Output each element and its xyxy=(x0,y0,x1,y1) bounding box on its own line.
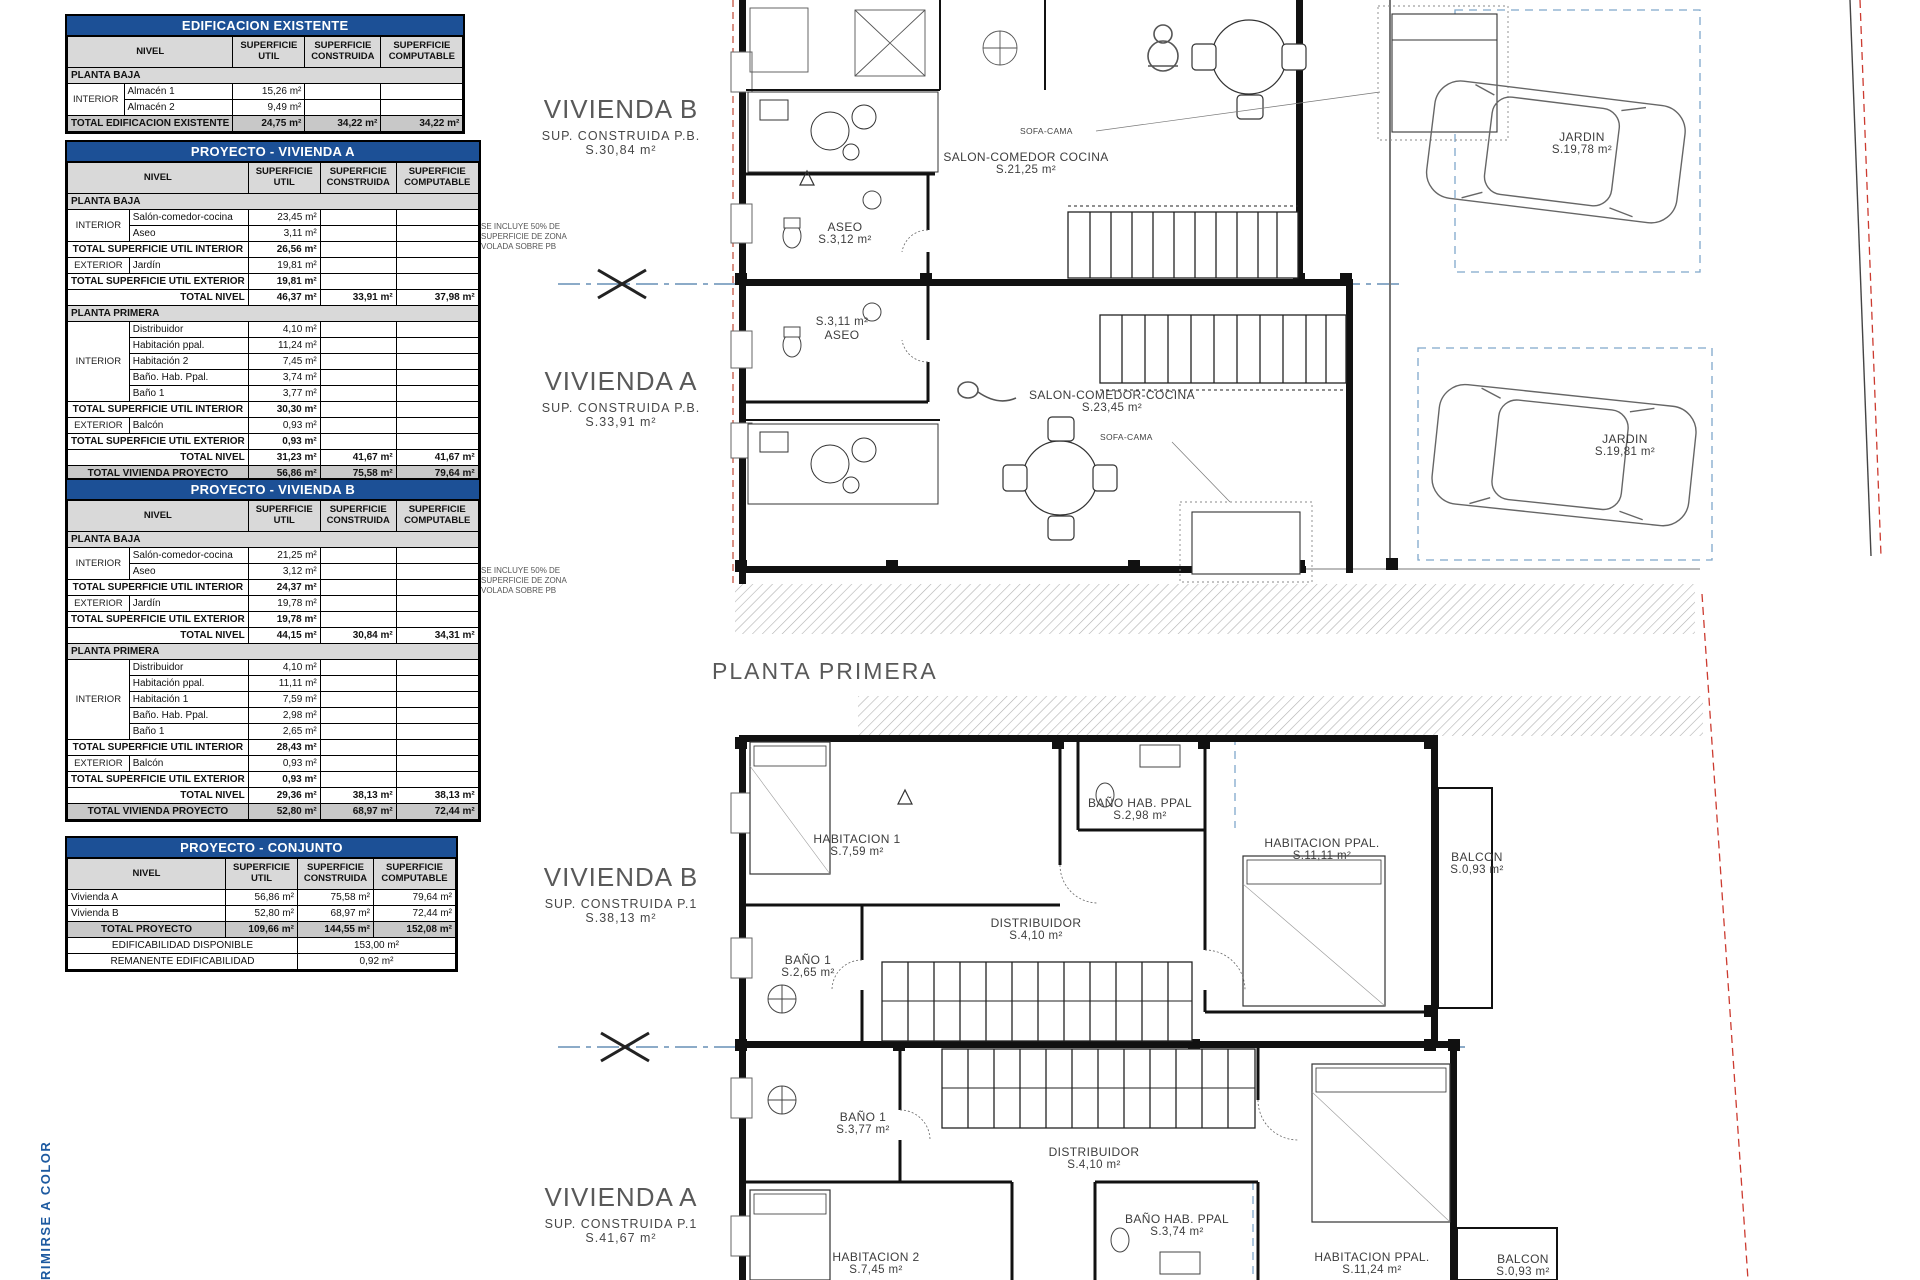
cell: 41,67 m² xyxy=(396,450,478,466)
cell: 9,49 m² xyxy=(233,100,305,116)
col-header-nivel: NIVEL xyxy=(68,163,249,194)
cell xyxy=(320,596,396,612)
room-name: ASEO xyxy=(816,328,869,342)
col-header-util: SUPERFICIE UTIL xyxy=(226,859,298,890)
col-header-util: SUPERFICIE UTIL xyxy=(248,501,320,532)
col-header-nivel: NIVEL xyxy=(68,501,249,532)
cell: Baño. Hab. Ppal. xyxy=(129,370,248,386)
group-cell: INTERIOR xyxy=(68,322,130,402)
cell: 34,31 m² xyxy=(396,628,478,644)
total-nivel-label: TOTAL NIVEL xyxy=(68,450,249,466)
car-icon-a xyxy=(1429,382,1698,528)
cell: 24,37 m² xyxy=(248,580,320,596)
pb-top-fixtures xyxy=(750,8,1017,76)
cell: 0,93 m² xyxy=(248,756,320,772)
room-area: S.11,24 m² xyxy=(1314,1264,1429,1276)
p1-up-arrow-icon xyxy=(898,790,912,804)
room-area: S.19,81 m² xyxy=(1595,446,1655,458)
room-name: HABITACION 1 xyxy=(813,832,900,846)
room-label-habitacion2-a: HABITACION 2 S.7,45 m² xyxy=(832,1250,919,1276)
cell xyxy=(320,724,396,740)
cell: 79,64 m² xyxy=(374,890,456,906)
cell xyxy=(320,370,396,386)
cell: 38,13 m² xyxy=(320,788,396,804)
table-proyecto-vivienda-b: PROYECTO - VIVIENDA B NIVEL SUPERFICIE U… xyxy=(65,478,481,822)
cell xyxy=(396,548,478,564)
cell: 19,78 m² xyxy=(248,596,320,612)
vivienda-area: S.33,91 m² xyxy=(542,415,700,429)
remanente-value: 0,92 m² xyxy=(298,954,456,970)
room-area: S.7,59 m² xyxy=(813,846,900,858)
subtotal-label: TOTAL SUPERFICIE UTIL INTERIOR xyxy=(68,740,249,756)
cell: Balcón xyxy=(129,756,248,772)
room-name: HABITACION 2 xyxy=(832,1250,919,1264)
room-area: S.21,25 m² xyxy=(943,164,1108,176)
group-cell: INTERIOR xyxy=(68,660,130,740)
label-vivienda-a-p1: VIVIENDA A SUP. CONSTRUIDA P.1 S.41,67 m… xyxy=(544,1182,697,1245)
room-name: DISTRIBUIDOR xyxy=(1049,1145,1140,1159)
cell: Habitación 2 xyxy=(129,354,248,370)
vivienda-title: VIVIENDA A xyxy=(544,1182,697,1213)
label-vivienda-a-pb: VIVIENDA A SUP. CONSTRUIDA P.B. S.33,91 … xyxy=(542,366,700,429)
note-50pct-vivienda-a: SE INCLUYE 50% DE SUPERFICIE DE ZONA VOL… xyxy=(481,222,579,252)
cell xyxy=(381,84,463,100)
cell xyxy=(320,564,396,580)
col-header-util: SUPERFICIE UTIL xyxy=(233,37,305,68)
pb-stairs-a xyxy=(1100,315,1346,390)
table-title: PROYECTO - VIVIENDA B xyxy=(67,480,479,500)
cell: Jardín xyxy=(129,258,248,274)
grand-total-label: TOTAL VIVIENDA PROYECTO xyxy=(68,804,249,820)
col-header-computable: SUPERFICIE COMPUTABLE xyxy=(374,859,456,890)
table-proyecto-vivienda-a: PROYECTO - VIVIENDA A NIVEL SUPERFICIE U… xyxy=(65,140,481,484)
room-area: S.4,10 m² xyxy=(991,930,1082,942)
vivienda-title: VIVIENDA B xyxy=(544,862,699,893)
label-sofa-cama-a: SOFA-CAMA xyxy=(1100,432,1153,442)
room-label-jardin-a: JARDIN S.19,81 m² xyxy=(1595,432,1655,458)
col-header-nivel: NIVEL xyxy=(68,37,233,68)
cell xyxy=(396,756,478,772)
cell xyxy=(396,564,478,580)
pb-sofa-a xyxy=(1172,442,1312,582)
room-label-distribuidor-a: DISTRIBUIDOR S.4,10 m² xyxy=(1049,1145,1140,1171)
cell: 72,44 m² xyxy=(374,906,456,922)
cell xyxy=(396,210,478,226)
cell: 30,84 m² xyxy=(320,628,396,644)
room-area: S.4,10 m² xyxy=(1049,1159,1140,1171)
vivienda-sub: SUP. CONSTRUIDA P.B. xyxy=(542,401,700,415)
section-row: PLANTA BAJA xyxy=(68,532,479,548)
col-header-computable: SUPERFICIE COMPUTABLE xyxy=(396,501,478,532)
cell xyxy=(320,210,396,226)
cell: 44,15 m² xyxy=(248,628,320,644)
table-title: PROYECTO - CONJUNTO xyxy=(67,838,456,858)
cell xyxy=(320,354,396,370)
label-sofa-cama-b: SOFA-CAMA xyxy=(1020,126,1073,136)
col-header-construida: SUPERFICIE CONSTRUIDA xyxy=(320,501,396,532)
cell: 19,78 m² xyxy=(248,612,320,628)
room-name: DISTRIBUIDOR xyxy=(991,916,1082,930)
cell: 75,58 m² xyxy=(298,890,374,906)
subtotal-label: TOTAL SUPERFICIE UTIL INTERIOR xyxy=(68,580,249,596)
col-header-computable: SUPERFICIE COMPUTABLE xyxy=(381,37,463,68)
total-nivel-label: TOTAL NIVEL xyxy=(68,788,249,804)
cell xyxy=(396,418,478,434)
room-name: HABITACION PPAL. xyxy=(1264,836,1379,850)
cell: 41,67 m² xyxy=(320,450,396,466)
cell: 11,11 m² xyxy=(248,676,320,692)
cell xyxy=(396,386,478,402)
cell xyxy=(396,612,478,628)
subtotal-label: TOTAL SUPERFICIE UTIL INTERIOR xyxy=(68,402,249,418)
room-name: JARDIN xyxy=(1595,432,1655,446)
cell: Habitación 1 xyxy=(129,692,248,708)
cell xyxy=(396,740,478,756)
group-cell: EXTERIOR xyxy=(68,756,130,772)
vivienda-sub: SUP. CONSTRUIDA P.1 xyxy=(544,897,699,911)
vivienda-sub: SUP. CONSTRUIDA P.1 xyxy=(544,1217,697,1231)
cell: 34,22 m² xyxy=(305,116,381,132)
cell xyxy=(305,84,381,100)
total-nivel-label: TOTAL NIVEL xyxy=(68,290,249,306)
cell xyxy=(396,692,478,708)
cell xyxy=(320,322,396,338)
vivienda-title: VIVIENDA B xyxy=(542,94,700,125)
cell: 52,80 m² xyxy=(226,906,298,922)
vivienda-area: S.41,67 m² xyxy=(544,1231,697,1245)
cell: 24,75 m² xyxy=(233,116,305,132)
cell: 23,45 m² xyxy=(248,210,320,226)
cell: 19,81 m² xyxy=(248,258,320,274)
room-area: S.3,12 m² xyxy=(818,234,871,246)
col-header-construida: SUPERFICIE CONSTRUIDA xyxy=(298,859,374,890)
cell xyxy=(320,338,396,354)
cell xyxy=(396,274,478,290)
table-title: PROYECTO - VIVIENDA A xyxy=(67,142,479,162)
cell: 72,44 m² xyxy=(396,804,478,820)
cell: 31,23 m² xyxy=(248,450,320,466)
room-label-distribuidor-b: DISTRIBUIDOR S.4,10 m² xyxy=(991,916,1082,942)
subtotal-label: TOTAL SUPERFICIE UTIL EXTERIOR xyxy=(68,772,249,788)
cell xyxy=(320,258,396,274)
cell xyxy=(396,338,478,354)
cell: 26,56 m² xyxy=(248,242,320,258)
label-vivienda-b-pb: VIVIENDA B SUP. CONSTRUIDA P.B. S.30,84 … xyxy=(542,94,700,157)
total-nivel-label: TOTAL NIVEL xyxy=(68,628,249,644)
cell: 33,91 m² xyxy=(320,290,396,306)
cell xyxy=(320,402,396,418)
cell: Habitación ppal. xyxy=(129,676,248,692)
subtotal-label: TOTAL SUPERFICIE UTIL EXTERIOR xyxy=(68,612,249,628)
table-edificacion-existente: EDIFICACION EXISTENTE NIVEL SUPERFICIE U… xyxy=(65,14,465,134)
section-row: PLANTA PRIMERA xyxy=(68,644,479,660)
cell xyxy=(396,724,478,740)
cell xyxy=(320,242,396,258)
garden-dashed-outlines xyxy=(1235,10,1712,1280)
cell xyxy=(396,354,478,370)
cell: Almacén 1 xyxy=(124,84,233,100)
floor-title-planta-primera: PLANTA PRIMERA xyxy=(712,658,938,685)
room-label-habitacion-ppal-b: HABITACION PPAL. S.11,11 m² xyxy=(1264,836,1379,862)
cell: 68,97 m² xyxy=(320,804,396,820)
cell: 144,55 m² xyxy=(298,922,374,938)
print-color-note: RIMIRSE A COLOR xyxy=(38,1150,53,1280)
room-name: BALCON xyxy=(1496,1252,1549,1266)
cell: 152,08 m² xyxy=(374,922,456,938)
room-name: BALCON xyxy=(1450,850,1503,864)
cell xyxy=(396,402,478,418)
room-area: S.2,98 m² xyxy=(1088,810,1192,822)
room-area: S.3,11 m² xyxy=(816,316,869,328)
vivienda-area: S.38,13 m² xyxy=(544,911,699,925)
cell xyxy=(396,226,478,242)
cell xyxy=(381,100,463,116)
cell xyxy=(320,274,396,290)
cell xyxy=(320,418,396,434)
cell: 68,97 m² xyxy=(298,906,374,922)
pb-kitchen-a xyxy=(748,424,938,504)
cell: 29,36 m² xyxy=(248,788,320,804)
room-name: BAÑO 1 xyxy=(836,1110,889,1124)
room-name: BAÑO HAB. PPAL xyxy=(1088,796,1192,810)
cell: Aseo xyxy=(129,564,248,580)
room-area: S.0,93 m² xyxy=(1450,864,1503,876)
room-area: S.2,65 m² xyxy=(781,967,834,979)
room-label-salon-b: SALON-COMEDOR COCINA S.21,25 m² xyxy=(943,150,1108,176)
cell xyxy=(320,676,396,692)
cell: 0,93 m² xyxy=(248,418,320,434)
cell xyxy=(320,772,396,788)
table-title: EDIFICACION EXISTENTE xyxy=(67,16,463,36)
cell: 7,59 m² xyxy=(248,692,320,708)
cell: 3,11 m² xyxy=(248,226,320,242)
cell xyxy=(320,660,396,676)
room-name: SALON-COMEDOR-COCINA xyxy=(1029,388,1195,402)
cell: 15,26 m² xyxy=(233,84,305,100)
cell: 2,98 m² xyxy=(248,708,320,724)
cell: 56,86 m² xyxy=(226,890,298,906)
cell: 34,22 m² xyxy=(381,116,463,132)
room-label-bano1-b: BAÑO 1 S.2,65 m² xyxy=(781,953,834,979)
cell: 38,13 m² xyxy=(396,788,478,804)
cell: 4,10 m² xyxy=(248,660,320,676)
cell xyxy=(396,596,478,612)
group-cell: EXTERIOR xyxy=(68,418,130,434)
room-label-balcon-b: BALCON S.0,93 m² xyxy=(1450,850,1503,876)
parcel-boundaries xyxy=(733,0,1881,1280)
cell: Salón-comedor-cocina xyxy=(129,210,248,226)
cell: Aseo xyxy=(129,226,248,242)
room-area: S.3,77 m² xyxy=(836,1124,889,1136)
note-50pct-vivienda-b: SE INCLUYE 50% DE SUPERFICIE DE ZONA VOL… xyxy=(481,566,579,596)
vivienda-sub: SUP. CONSTRUIDA P.B. xyxy=(542,129,700,143)
vivienda-area: S.30,84 m² xyxy=(542,143,700,157)
room-label-bano-ppal-b: BAÑO HAB. PPAL S.2,98 m² xyxy=(1088,796,1192,822)
room-area: S.11,11 m² xyxy=(1264,850,1379,862)
subtotal-label: TOTAL SUPERFICIE UTIL EXTERIOR xyxy=(68,434,249,450)
cell: Salón-comedor-cocina xyxy=(129,548,248,564)
p1-stairs-a xyxy=(942,1049,1255,1128)
cell: Jardín xyxy=(129,596,248,612)
cell: 3,12 m² xyxy=(248,564,320,580)
room-label-aseo-b: ASEO S.3,12 m² xyxy=(818,220,871,246)
room-area: S.7,45 m² xyxy=(832,1264,919,1276)
cell xyxy=(320,708,396,724)
section-row: PLANTA PRIMERA xyxy=(68,306,479,322)
section-row: PLANTA BAJA xyxy=(68,68,463,84)
cell: Almacén 2 xyxy=(124,100,233,116)
cell xyxy=(396,370,478,386)
room-name: HABITACION PPAL. xyxy=(1314,1250,1429,1264)
total-label: TOTAL EDIFICACION EXISTENTE xyxy=(68,116,233,132)
cell: 2,65 m² xyxy=(248,724,320,740)
col-header-computable: SUPERFICIE COMPUTABLE xyxy=(396,163,478,194)
cell xyxy=(396,322,478,338)
room-area: S.0,93 m² xyxy=(1496,1266,1549,1278)
table-proyecto-conjunto: PROYECTO - CONJUNTO NIVEL SUPERFICIE UTI… xyxy=(65,836,458,972)
p1-stairs-b xyxy=(882,962,1192,1041)
cell: 0,93 m² xyxy=(248,772,320,788)
cell xyxy=(396,434,478,450)
col-header-util: SUPERFICIE UTIL xyxy=(248,163,320,194)
plan-sheet: EDIFICACION EXISTENTE NIVEL SUPERFICIE U… xyxy=(0,0,1920,1280)
room-label-balcon-a: BALCON S.0,93 m² xyxy=(1496,1252,1549,1278)
room-area: S.23,45 m² xyxy=(1029,402,1195,414)
subtotal-label: TOTAL SUPERFICIE UTIL INTERIOR xyxy=(68,242,249,258)
group-cell: EXTERIOR xyxy=(68,258,130,274)
group-cell: INTERIOR xyxy=(68,84,125,116)
cell xyxy=(305,100,381,116)
cell: Balcón xyxy=(129,418,248,434)
cell xyxy=(320,756,396,772)
cell: Vivienda B xyxy=(68,906,226,922)
cell: 30,30 m² xyxy=(248,402,320,418)
col-header-construida: SUPERFICIE CONSTRUIDA xyxy=(305,37,381,68)
room-label-bano1-a: BAÑO 1 S.3,77 m² xyxy=(836,1110,889,1136)
group-cell: EXTERIOR xyxy=(68,596,130,612)
cell: 28,43 m² xyxy=(248,740,320,756)
room-label-aseo-a: S.3,11 m² ASEO xyxy=(816,316,869,342)
pb-dining-b xyxy=(1192,20,1306,119)
cell xyxy=(396,708,478,724)
group-cell: INTERIOR xyxy=(68,210,130,242)
cell xyxy=(320,386,396,402)
room-label-habitacion1-b: HABITACION 1 S.7,59 m² xyxy=(813,832,900,858)
cell: 46,37 m² xyxy=(248,290,320,306)
cell: Distribuidor xyxy=(129,660,248,676)
cell: Baño 1 xyxy=(129,724,248,740)
remanente-label: REMANENTE EDIFICABILIDAD xyxy=(68,954,298,970)
group-cell: INTERIOR xyxy=(68,548,130,580)
cell: 37,98 m² xyxy=(396,290,478,306)
grand-total-label: TOTAL PROYECTO xyxy=(68,922,226,938)
cell: 0,93 m² xyxy=(248,434,320,450)
cell: Baño 1 xyxy=(129,386,248,402)
room-label-jardin-b: JARDIN S.19,78 m² xyxy=(1552,130,1612,156)
room-name: BAÑO 1 xyxy=(781,953,834,967)
subtotal-label: TOTAL SUPERFICIE UTIL EXTERIOR xyxy=(68,274,249,290)
cell xyxy=(396,258,478,274)
label-vivienda-b-p1: VIVIENDA B SUP. CONSTRUIDA P.1 S.38,13 m… xyxy=(544,862,699,925)
cell: 21,25 m² xyxy=(248,548,320,564)
cell: 7,45 m² xyxy=(248,354,320,370)
edificabilidad-value: 153,00 m² xyxy=(298,938,456,954)
cell xyxy=(320,692,396,708)
cell: 3,74 m² xyxy=(248,370,320,386)
edificabilidad-label: EDIFICABILIDAD DISPONIBLE xyxy=(68,938,298,954)
pb-kitchen-b xyxy=(748,92,938,172)
cell: 109,66 m² xyxy=(226,922,298,938)
cell xyxy=(320,434,396,450)
section-row: PLANTA BAJA xyxy=(68,194,479,210)
cell xyxy=(396,242,478,258)
cell xyxy=(396,580,478,596)
pb-stairs-b xyxy=(1068,206,1298,278)
room-name: SALON-COMEDOR COCINA xyxy=(943,150,1108,164)
cell: 11,24 m² xyxy=(248,338,320,354)
room-area: S.19,78 m² xyxy=(1552,144,1612,156)
cell: Vivienda A xyxy=(68,890,226,906)
cell xyxy=(320,548,396,564)
cell xyxy=(320,612,396,628)
room-name: ASEO xyxy=(818,220,871,234)
room-label-salon-a: SALON-COMEDOR-COCINA S.23,45 m² xyxy=(1029,388,1195,414)
cell: 4,10 m² xyxy=(248,322,320,338)
col-header-construida: SUPERFICIE CONSTRUIDA xyxy=(320,163,396,194)
cell xyxy=(320,580,396,596)
room-label-habitacion-ppal-a: HABITACION PPAL. S.11,24 m² xyxy=(1314,1250,1429,1276)
cell xyxy=(396,660,478,676)
cell: Habitación ppal. xyxy=(129,338,248,354)
cell: 52,80 m² xyxy=(248,804,320,820)
cell: Distribuidor xyxy=(129,322,248,338)
cell xyxy=(320,226,396,242)
room-name: BAÑO HAB. PPAL xyxy=(1125,1212,1229,1226)
vivienda-title: VIVIENDA A xyxy=(542,366,700,397)
col-header-nivel: NIVEL xyxy=(68,859,226,890)
cell xyxy=(320,740,396,756)
room-name: JARDIN xyxy=(1552,130,1612,144)
pb-door-arcs xyxy=(902,230,928,362)
cell: 3,77 m² xyxy=(248,386,320,402)
cell: 19,81 m² xyxy=(248,274,320,290)
cell xyxy=(396,676,478,692)
cell xyxy=(396,772,478,788)
room-label-bano-ppal-a: BAÑO HAB. PPAL S.3,74 m² xyxy=(1125,1212,1229,1238)
room-area: S.3,74 m² xyxy=(1125,1226,1229,1238)
cell: Baño. Hab. Ppal. xyxy=(129,708,248,724)
